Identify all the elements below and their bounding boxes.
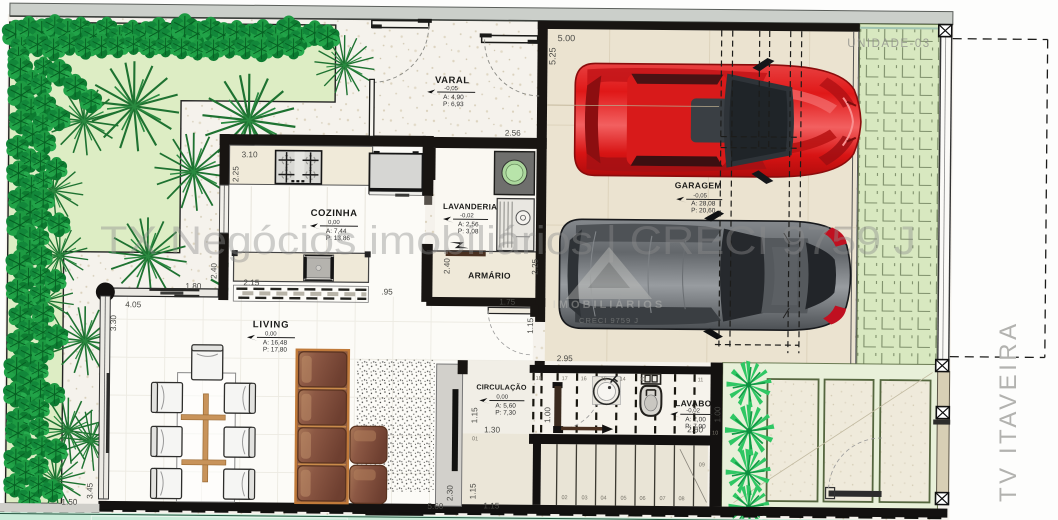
svg-text:08: 08 <box>678 496 684 502</box>
svg-text:4.05: 4.05 <box>125 300 141 309</box>
svg-text:1.15: 1.15 <box>468 483 477 499</box>
svg-text:01: 01 <box>472 436 478 442</box>
svg-text:-0,05: -0,05 <box>693 193 707 199</box>
svg-text:2.30: 2.30 <box>445 485 454 501</box>
svg-text:2.25: 2.25 <box>231 166 240 182</box>
svg-text:2.95: 2.95 <box>557 354 573 363</box>
svg-text:1.00: 1.00 <box>713 406 722 422</box>
svg-text:17: 17 <box>562 376 568 382</box>
svg-text:06: 06 <box>639 496 645 502</box>
svg-text:14: 14 <box>620 377 626 383</box>
svg-text:2.56: 2.56 <box>505 129 521 138</box>
svg-text:1.30: 1.30 <box>484 425 500 434</box>
svg-text:P: 7,30: P: 7,30 <box>495 410 516 417</box>
svg-text:1.15: 1.15 <box>470 407 479 423</box>
svg-text:04: 04 <box>600 495 606 501</box>
svg-text:LAVABO: LAVABO <box>675 398 712 408</box>
svg-text:05: 05 <box>620 496 626 502</box>
svg-text:5.25: 5.25 <box>547 47 557 65</box>
svg-text:-0,02: -0,02 <box>686 408 700 414</box>
svg-text:.95: .95 <box>381 287 393 296</box>
svg-text:UNIDADE-03: UNIDADE-03 <box>847 38 930 50</box>
svg-text:P: 20,60: P: 20,60 <box>691 207 716 214</box>
svg-text:15: 15 <box>601 376 607 382</box>
svg-text:11: 11 <box>698 377 704 383</box>
svg-text:VARAL: VARAL <box>435 75 470 86</box>
svg-text:GARAGEM: GARAGEM <box>675 180 722 190</box>
svg-text:3.45: 3.45 <box>85 482 94 498</box>
svg-text:18: 18 <box>536 376 542 382</box>
svg-text:2.50: 2.50 <box>687 425 703 434</box>
svg-text:P: 6,93: P: 6,93 <box>443 101 464 108</box>
svg-text:10: 10 <box>712 430 718 436</box>
svg-text:3.10: 3.10 <box>242 150 258 159</box>
svg-text:5.60: 5.60 <box>427 502 443 511</box>
svg-text:13: 13 <box>640 377 646 383</box>
svg-text:0,00: 0,00 <box>496 395 508 401</box>
svg-text:-0,05: -0,05 <box>444 86 458 92</box>
svg-text:3.30: 3.30 <box>109 315 118 331</box>
svg-text:1.80: 1.80 <box>185 282 201 291</box>
svg-text:LAVANDERIA: LAVANDERIA <box>443 202 497 211</box>
svg-text:02: 02 <box>561 495 567 501</box>
svg-text:COZINHA: COZINHA <box>311 208 358 219</box>
svg-text:5.00: 5.00 <box>558 33 576 43</box>
svg-text:16: 16 <box>581 376 587 382</box>
svg-text:CRECI 9759 J: CRECI 9759 J <box>579 316 639 325</box>
svg-text:1.15: 1.15 <box>526 317 535 333</box>
svg-text:1.00: 1.00 <box>543 407 552 423</box>
svg-text:P: 17,80: P: 17,80 <box>263 346 288 353</box>
svg-text:1.75: 1.75 <box>499 298 515 307</box>
svg-text:ARMÁRIO: ARMÁRIO <box>468 270 511 280</box>
svg-text:IMOBILIÁRIOS: IMOBILIÁRIOS <box>553 298 665 311</box>
svg-text:LIVING: LIVING <box>253 319 290 330</box>
svg-text:03: 03 <box>581 495 587 501</box>
svg-text:2.15: 2.15 <box>243 278 259 287</box>
svg-text:07: 07 <box>659 496 665 502</box>
svg-text:TV ITAVEIRA: TV ITAVEIRA <box>995 320 1022 502</box>
svg-text:1.50: 1.50 <box>61 498 77 507</box>
svg-text:0,00: 0,00 <box>265 331 277 337</box>
svg-text:TX Negócios imobiliários | CRE: TX Negócios imobiliários | CRECI 9759 J <box>100 219 916 263</box>
svg-text:2.40: 2.40 <box>209 263 218 279</box>
svg-text:1.15: 1.15 <box>483 501 499 510</box>
svg-text:CIRCULAÇÃO: CIRCULAÇÃO <box>476 382 527 391</box>
svg-text:09: 09 <box>699 462 705 468</box>
